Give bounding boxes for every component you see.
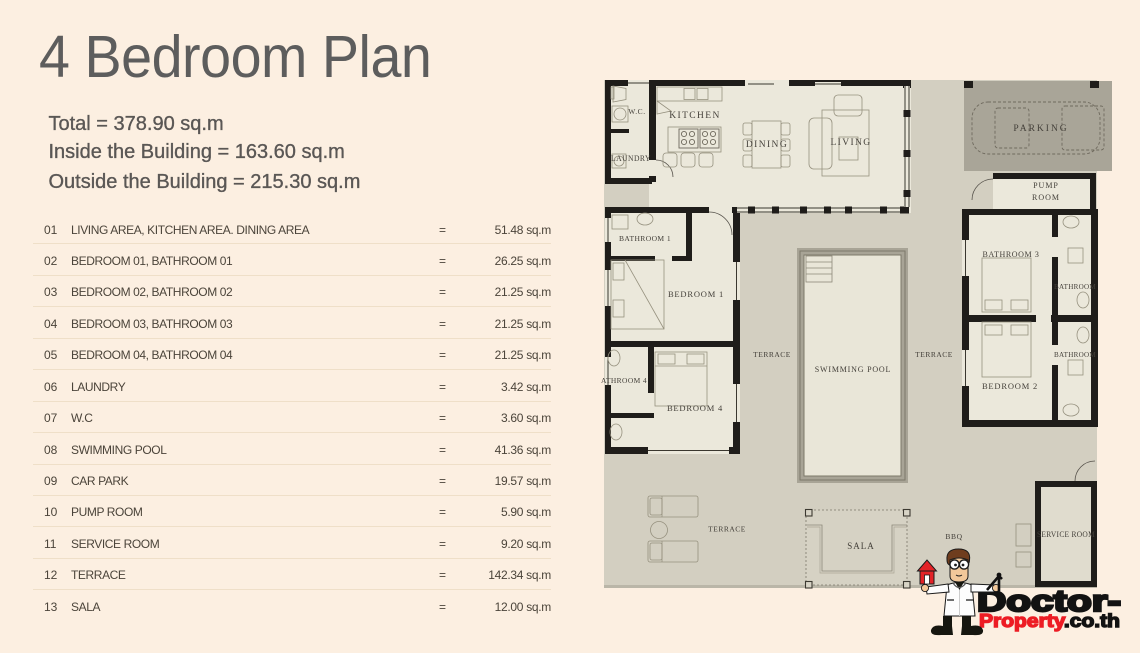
svg-text:DINING: DINING [746, 140, 788, 150]
svg-text:TERRACE: TERRACE [708, 525, 746, 534]
svg-text:BEDROOM 4: BEDROOM 4 [667, 403, 723, 413]
svg-text:BEDROOM 2: BEDROOM 2 [982, 381, 1038, 391]
svg-text:SALA: SALA [847, 541, 875, 551]
svg-text:BEDROOM 1: BEDROOM 1 [668, 289, 724, 299]
svg-text:ATHROOM 4: ATHROOM 4 [601, 376, 647, 385]
svg-text:LAUNDRY: LAUNDRY [611, 154, 651, 163]
svg-text:BBQ: BBQ [945, 532, 962, 541]
svg-text:BATHROOM: BATHROOM [1054, 282, 1096, 291]
svg-text:KITCHEN: KITCHEN [669, 111, 721, 121]
svg-text:BATHROOM 1: BATHROOM 1 [619, 234, 671, 243]
svg-text:TERRACE: TERRACE [915, 350, 953, 359]
svg-text:LIVING: LIVING [830, 138, 871, 148]
svg-text:Property.co.th: Property.co.th [979, 610, 1120, 631]
svg-text:BATHROOM 3: BATHROOM 3 [983, 250, 1040, 259]
svg-text:BATHROOM: BATHROOM [1054, 350, 1096, 359]
svg-text:PUMP: PUMP [1033, 181, 1059, 190]
svg-text:TERRACE: TERRACE [753, 350, 791, 359]
svg-text:W.C.: W.C. [628, 107, 646, 116]
svg-text:SWIMMING POOL: SWIMMING POOL [815, 365, 891, 374]
svg-text:ROOM: ROOM [1032, 193, 1060, 202]
svg-text:SERVICE ROOM: SERVICE ROOM [1037, 530, 1095, 539]
svg-text:PARKING: PARKING [1013, 124, 1068, 134]
